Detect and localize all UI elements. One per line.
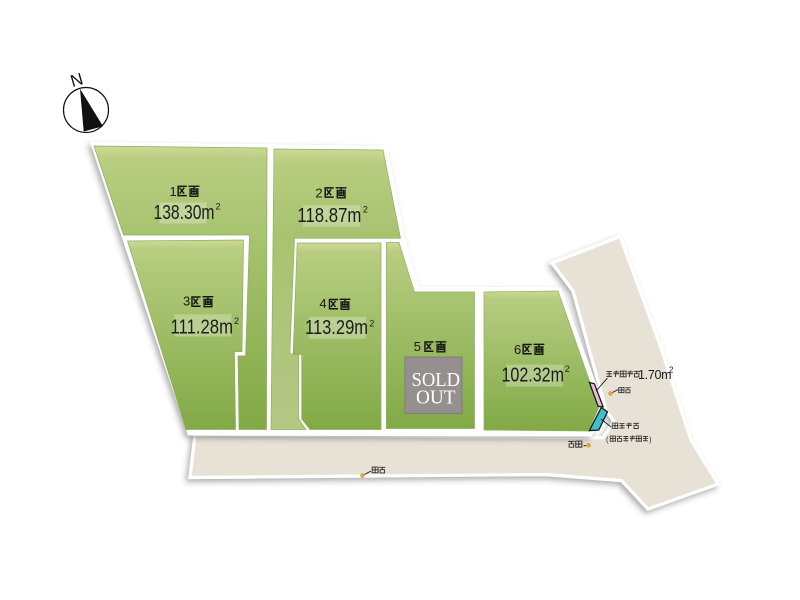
svg-text:2: 2 [669,366,674,375]
svg-text:1.70m: 1.70m [638,368,671,382]
svg-text:2: 2 [216,202,221,212]
svg-text:4: 4 [319,296,326,311]
svg-text:3: 3 [183,294,190,309]
svg-text:138.30m: 138.30m [154,202,215,224]
svg-text:6: 6 [514,342,521,357]
svg-text:2: 2 [234,316,239,326]
svg-text:102.32m: 102.32m [502,365,565,387]
svg-text:5: 5 [414,339,421,354]
svg-text:113.29m: 113.29m [305,317,368,339]
svg-text:2: 2 [565,364,570,374]
svg-text:2: 2 [315,185,322,200]
svg-text:2: 2 [369,318,374,328]
svg-text:118.87m: 118.87m [297,205,361,227]
svg-text:OUT: OUT [416,386,456,408]
svg-text:2: 2 [363,205,368,215]
svg-text:111.28m: 111.28m [171,317,234,339]
svg-text:1: 1 [170,184,177,199]
